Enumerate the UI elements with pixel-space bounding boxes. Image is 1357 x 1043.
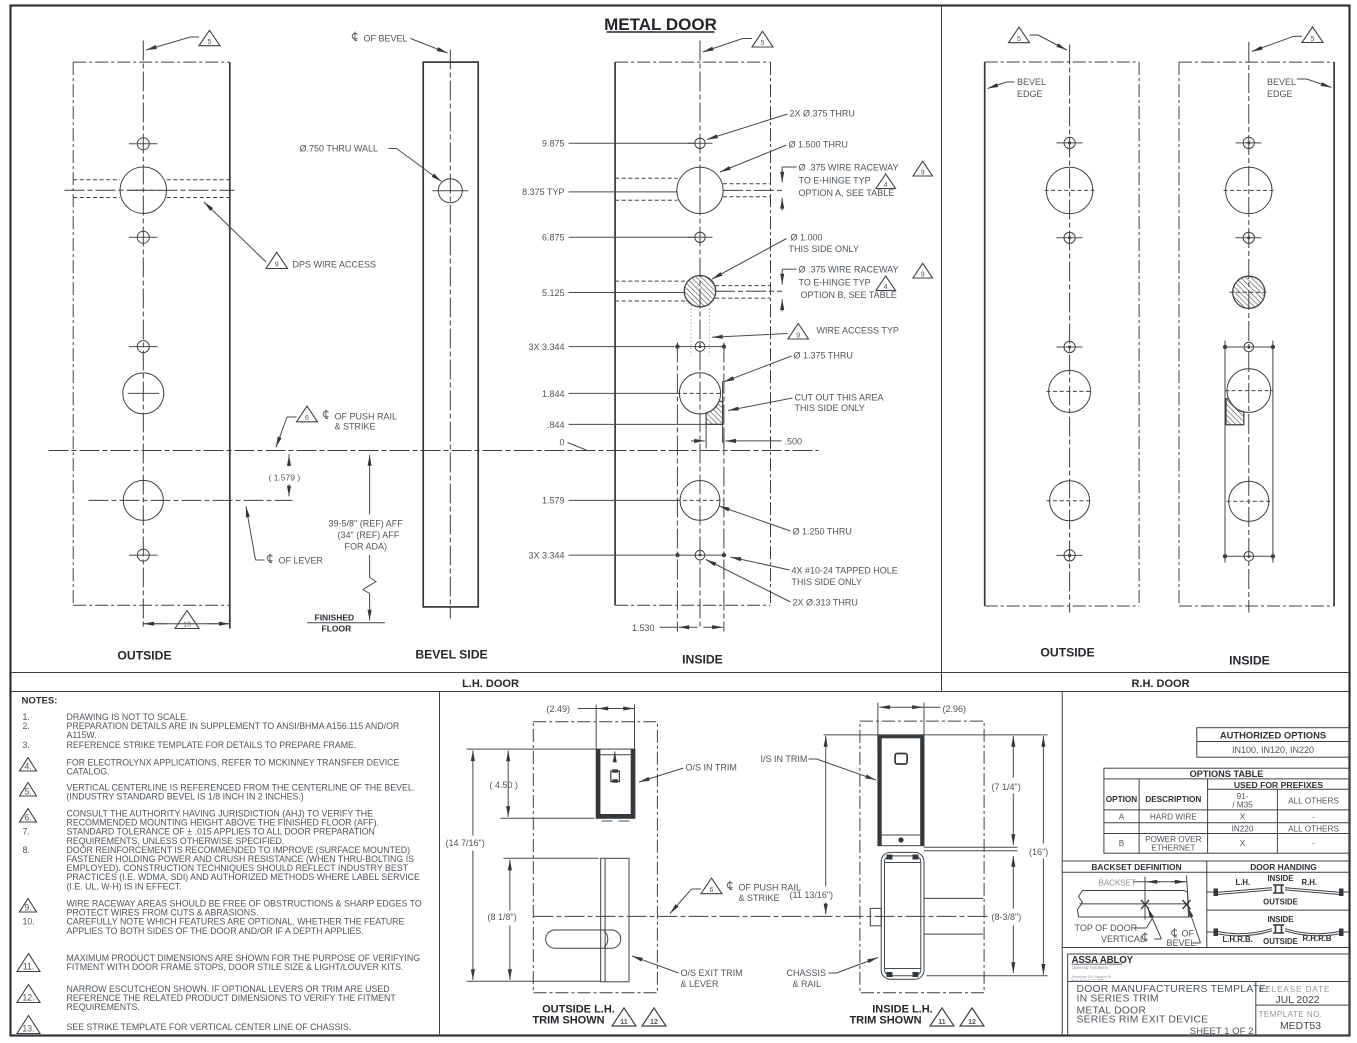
- svg-text:WIRE ACCESS TYP: WIRE ACCESS TYP: [817, 326, 899, 336]
- svg-text:BEVEL SIDE: BEVEL SIDE: [415, 648, 487, 662]
- svg-text:FOR ADA): FOR ADA): [345, 542, 388, 552]
- svg-text:-: -: [1312, 839, 1315, 848]
- svg-text:9: 9: [921, 169, 925, 176]
- svg-text:OPTION B, SEE TABLE: OPTION B, SEE TABLE: [801, 290, 897, 300]
- svg-text:New Haven CT 06511: New Haven CT 06511: [1072, 978, 1107, 982]
- svg-text:REFERENCE STRIKE TEMPLATE FOR: REFERENCE STRIKE TEMPLATE FOR DETAILS TO…: [67, 740, 357, 750]
- svg-text:THIS SIDE ONLY: THIS SIDE ONLY: [792, 577, 862, 587]
- svg-text:BEVEL: BEVEL: [1267, 77, 1296, 87]
- svg-text:4.: 4.: [24, 762, 31, 772]
- svg-text:9: 9: [275, 262, 279, 269]
- svg-text:B: B: [1119, 839, 1125, 848]
- svg-text:BEVEL: BEVEL: [1017, 77, 1046, 87]
- svg-text:& STRIKE: & STRIKE: [739, 893, 780, 903]
- svg-text:OUTSIDE: OUTSIDE: [1263, 937, 1298, 946]
- svg-text:IN100, IN120, IN220: IN100, IN120, IN220: [1232, 745, 1314, 755]
- svg-text:12: 12: [968, 1019, 976, 1026]
- svg-text:SHEET 1 OF 2: SHEET 1 OF 2: [1190, 1026, 1254, 1037]
- svg-text:JUL 2022: JUL 2022: [1275, 995, 1319, 1006]
- svg-text:3X 3.344: 3X 3.344: [528, 342, 564, 352]
- svg-text:(11 13/16"): (11 13/16"): [790, 890, 834, 900]
- svg-text:FOR ELECTROLYNX APPLICATIONS,: FOR ELECTROLYNX APPLICATIONS, REFER TO M…: [67, 758, 400, 768]
- svg-text:OF LEVER: OF LEVER: [279, 556, 324, 566]
- svg-text:5: 5: [208, 39, 212, 46]
- svg-text:ALL OTHERS: ALL OTHERS: [1288, 797, 1339, 806]
- svg-text:AUTHORIZED OPTIONS: AUTHORIZED OPTIONS: [1220, 730, 1326, 741]
- svg-text:L.H. DOOR: L.H. DOOR: [462, 678, 519, 690]
- svg-text:9.: 9.: [24, 903, 31, 913]
- svg-text:9.875: 9.875: [542, 139, 565, 149]
- svg-text:Ø .375 WIRE RACEWAY: Ø .375 WIRE RACEWAY: [799, 163, 899, 173]
- svg-text:4X #10-24 TAPPED HOLE: 4X #10-24 TAPPED HOLE: [792, 566, 898, 576]
- svg-text:ALL OTHERS: ALL OTHERS: [1288, 825, 1339, 834]
- svg-text:& RAIL: & RAIL: [793, 979, 822, 989]
- svg-text:CATALOG.: CATALOG.: [67, 767, 110, 777]
- svg-text:X: X: [1240, 839, 1246, 848]
- svg-text:Ø 1.500 THRU: Ø 1.500 THRU: [789, 140, 848, 150]
- svg-text:1.530: 1.530: [632, 623, 655, 633]
- svg-text:X: X: [1240, 813, 1246, 822]
- svg-text:L.H.: L.H.: [1236, 878, 1251, 887]
- svg-text:6: 6: [710, 887, 714, 894]
- svg-text:39-5/8" (REF) AFF: 39-5/8" (REF) AFF: [329, 519, 404, 529]
- svg-text:2X Ø.313 THRU: 2X Ø.313 THRU: [793, 598, 858, 608]
- svg-text:EDGE: EDGE: [1267, 89, 1293, 99]
- svg-text:CUT OUT THIS AREA: CUT OUT THIS AREA: [795, 393, 884, 403]
- svg-text:PREPARATION DETAILS ARE IN SUP: PREPARATION DETAILS ARE IN SUPPLEMENT TO…: [67, 721, 400, 731]
- svg-text:R.H. DOOR: R.H. DOOR: [1131, 678, 1189, 690]
- svg-text:3.: 3.: [23, 740, 30, 750]
- svg-text:IN SERIES TRIM: IN SERIES TRIM: [1077, 994, 1159, 1005]
- svg-text:(16"): (16"): [1029, 847, 1048, 857]
- svg-text:O/S EXIT TRIM: O/S EXIT TRIM: [681, 968, 743, 978]
- svg-text:2.: 2.: [23, 721, 30, 731]
- svg-text:INSIDE: INSIDE: [682, 653, 723, 667]
- svg-text:(INDUSTRY STANDARD BEVEL IS 1/: (INDUSTRY STANDARD BEVEL IS 1/8 INCH IN …: [67, 792, 304, 802]
- svg-text:5: 5: [1311, 36, 1315, 43]
- svg-text:FINISHED: FINISHED: [315, 613, 355, 623]
- svg-text:VERTICAL: VERTICAL: [1101, 934, 1145, 944]
- svg-text:Opening Solutions: Opening Solutions: [1072, 965, 1110, 970]
- svg-text:5.: 5.: [24, 787, 31, 797]
- svg-text:8.: 8.: [23, 845, 30, 855]
- svg-text:-: -: [1312, 813, 1315, 822]
- svg-text:OUTSIDE: OUTSIDE: [1263, 898, 1298, 907]
- svg-text:TRIM SHOWN: TRIM SHOWN: [532, 1015, 604, 1027]
- svg-text:(7 1/4"): (7 1/4"): [992, 782, 1021, 792]
- svg-text:7.: 7.: [23, 827, 30, 837]
- svg-text:Ø.750 THRU WALL: Ø.750 THRU WALL: [300, 144, 379, 154]
- svg-text:OPTION: OPTION: [1106, 795, 1137, 804]
- svg-text:FITMENT WITH DOOR FRAME STOPS,: FITMENT WITH DOOR FRAME STOPS, DOOR STIL…: [67, 962, 404, 972]
- svg-text:( 4.50 ): ( 4.50 ): [490, 780, 519, 790]
- svg-text:& STRIKE: & STRIKE: [335, 422, 376, 432]
- svg-text:(2.49): (2.49): [547, 704, 571, 714]
- svg-text:6.: 6.: [24, 813, 31, 823]
- svg-text:THIS SIDE ONLY: THIS SIDE ONLY: [789, 244, 859, 254]
- svg-text:1.579: 1.579: [542, 496, 565, 506]
- svg-text:Ø .375 WIRE RACEWAY: Ø .375 WIRE RACEWAY: [799, 265, 899, 275]
- svg-text:10.: 10.: [23, 917, 35, 927]
- svg-text:Ø 1.000: Ø 1.000: [791, 233, 823, 243]
- svg-text:TO E-HINGE TYP: TO E-HINGE TYP: [799, 278, 871, 288]
- svg-text:A: A: [1119, 813, 1125, 822]
- svg-text:(8-3/8"): (8-3/8"): [992, 912, 1022, 922]
- svg-text:OUTSIDE: OUTSIDE: [117, 649, 171, 663]
- svg-text:12.: 12.: [22, 993, 34, 1003]
- svg-text:TOP OF DOOR: TOP OF DOOR: [1075, 923, 1138, 933]
- svg-text:11: 11: [938, 1019, 946, 1026]
- svg-text:EDGE: EDGE: [1017, 89, 1043, 99]
- svg-text:BEVEL: BEVEL: [1167, 938, 1196, 948]
- svg-text:9: 9: [796, 332, 800, 339]
- svg-text:FLOOR: FLOOR: [322, 624, 352, 634]
- svg-text:(8 1/8"): (8 1/8"): [488, 912, 517, 922]
- svg-text:DPS WIRE ACCESS: DPS WIRE ACCESS: [293, 260, 377, 270]
- svg-text:INSIDE: INSIDE: [1268, 874, 1294, 883]
- svg-text:11.: 11.: [23, 962, 35, 972]
- svg-text:(2.96): (2.96): [943, 704, 967, 714]
- svg-text:HARD WIRE: HARD WIRE: [1150, 813, 1197, 822]
- svg-text:SERIES RIM EXIT DEVICE: SERIES RIM EXIT DEVICE: [1077, 1015, 1209, 1026]
- svg-text:5: 5: [761, 40, 765, 47]
- svg-text:(14 7/16"): (14 7/16"): [446, 838, 485, 848]
- svg-text:5.125: 5.125: [542, 288, 565, 298]
- svg-text:3X 3.344: 3X 3.344: [528, 551, 564, 561]
- svg-text:/ M35: / M35: [1232, 801, 1253, 810]
- svg-text:MEDT53: MEDT53: [1280, 1021, 1321, 1032]
- svg-text:INSIDE: INSIDE: [1268, 915, 1294, 924]
- svg-text:USED FOR PREFIXES: USED FOR PREFIXES: [1234, 780, 1324, 790]
- svg-text:5: 5: [1017, 36, 1021, 43]
- svg-text:.844: .844: [547, 420, 565, 430]
- svg-text:9: 9: [921, 271, 925, 278]
- svg-text:6.875: 6.875: [542, 233, 565, 243]
- svg-text:NOTES:: NOTES:: [22, 696, 58, 707]
- svg-text:ETHERNET: ETHERNET: [1151, 844, 1195, 853]
- svg-text:8.375 TYP: 8.375 TYP: [522, 187, 564, 197]
- svg-text:SEE STRIKE TEMPLATE FOR VERTIC: SEE STRIKE TEMPLATE FOR VERTICAL CENTER …: [67, 1022, 352, 1032]
- svg-text:IN220: IN220: [1232, 825, 1254, 834]
- svg-text:(I.E. UL, W-H) IS IN EFFECT.: (I.E. UL, W-H) IS IN EFFECT.: [67, 881, 182, 891]
- svg-text:13: 13: [183, 622, 191, 629]
- svg-text:Ø 1.375 THRU: Ø 1.375 THRU: [794, 351, 853, 361]
- svg-text:TRIM SHOWN: TRIM SHOWN: [849, 1015, 921, 1027]
- svg-text:12: 12: [650, 1019, 658, 1026]
- svg-text:RELEASE DATE: RELEASE DATE: [1259, 985, 1331, 994]
- svg-text:OF: OF: [1182, 929, 1195, 939]
- svg-text:OF PUSH RAIL: OF PUSH RAIL: [335, 412, 398, 422]
- svg-text:TEMPLATE NO.: TEMPLATE NO.: [1259, 1010, 1323, 1019]
- svg-text:OUTSIDE: OUTSIDE: [1040, 646, 1094, 660]
- svg-text:OF BEVEL: OF BEVEL: [364, 34, 408, 44]
- svg-text:( 1.579 ): ( 1.579 ): [269, 473, 301, 483]
- svg-text:THIS SIDE ONLY: THIS SIDE ONLY: [795, 403, 865, 413]
- svg-text:INSIDE: INSIDE: [1229, 654, 1270, 668]
- svg-text:13.: 13.: [22, 1024, 34, 1034]
- svg-text:O/S IN TRIM: O/S IN TRIM: [686, 763, 737, 773]
- svg-text:DESCRIPTION: DESCRIPTION: [1145, 795, 1201, 804]
- svg-text:DOOR HANDING: DOOR HANDING: [1250, 862, 1317, 872]
- svg-text:BACKSET: BACKSET: [1099, 879, 1136, 888]
- svg-text:2X Ø.375 THRU: 2X Ø.375 THRU: [790, 109, 855, 119]
- svg-text:R.H.: R.H.: [1302, 878, 1318, 887]
- svg-text:REQUIREMENTS.: REQUIREMENTS.: [67, 1002, 140, 1012]
- svg-text:OPTIONS TABLE: OPTIONS TABLE: [1190, 769, 1264, 779]
- svg-text:APPLIES TO BOTH SIDES OF THE D: APPLIES TO BOTH SIDES OF THE DOOR AND/OR…: [67, 926, 364, 936]
- svg-text:METAL DOOR: METAL DOOR: [604, 15, 717, 34]
- svg-text:11: 11: [620, 1019, 628, 1026]
- svg-text:& LEVER: & LEVER: [681, 979, 720, 989]
- svg-text:TO E-HINGE TYP: TO E-HINGE TYP: [799, 176, 871, 186]
- svg-text:I/S IN TRIM: I/S IN TRIM: [761, 754, 808, 764]
- svg-text:CHASSIS: CHASSIS: [787, 968, 827, 978]
- svg-text:Ø 1.250 THRU: Ø 1.250 THRU: [793, 527, 852, 537]
- svg-text:OPTION A, SEE TABLE: OPTION A, SEE TABLE: [799, 188, 895, 198]
- svg-text:(34" (REF) AFF: (34" (REF) AFF: [338, 530, 400, 540]
- svg-text:6: 6: [305, 415, 309, 422]
- svg-text:BACKSET DEFINITION: BACKSET DEFINITION: [1091, 862, 1181, 872]
- svg-text:A115W.: A115W.: [67, 730, 97, 740]
- svg-text:1.844: 1.844: [542, 389, 565, 399]
- svg-text:.500: .500: [785, 437, 803, 447]
- svg-text:0: 0: [559, 438, 564, 448]
